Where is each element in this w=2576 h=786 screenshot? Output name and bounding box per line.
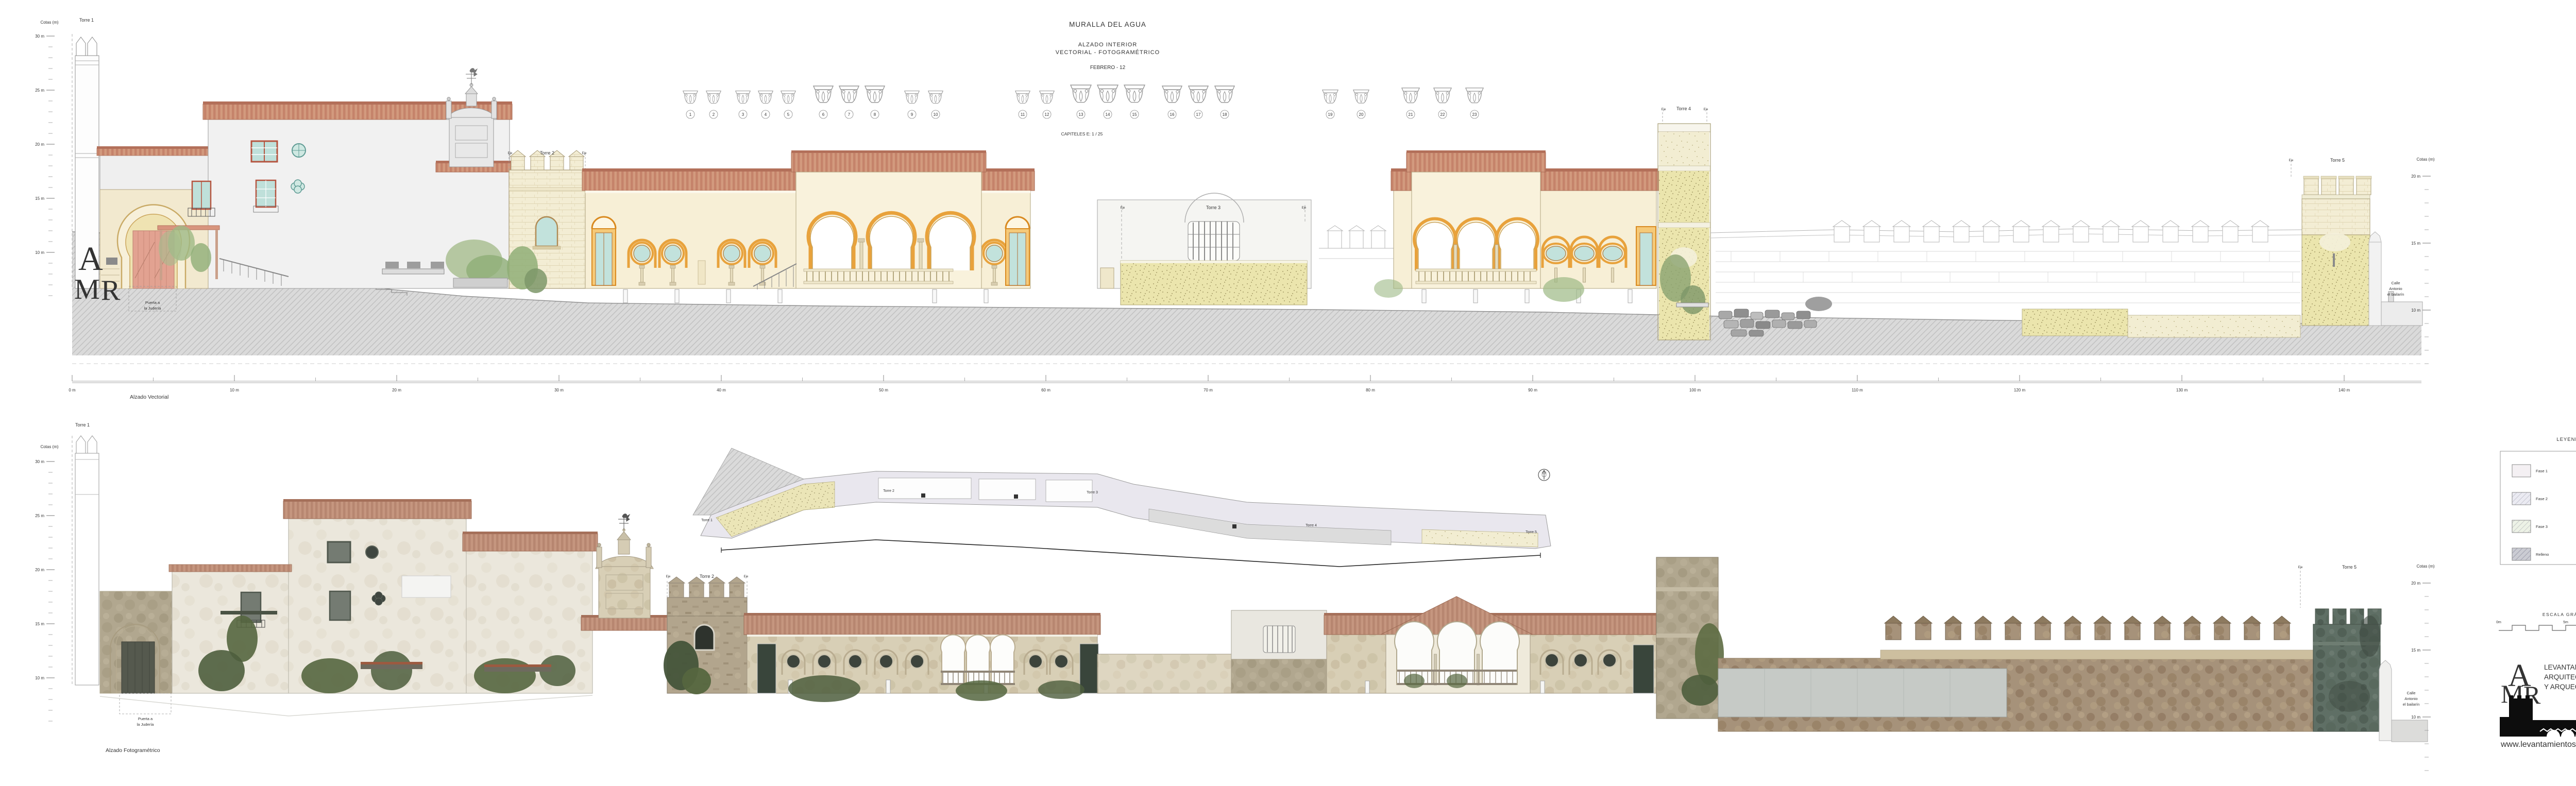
- cotas-label: 25 m: [35, 88, 44, 93]
- cotas-label: 10 m: [35, 250, 44, 255]
- page-title: MURALLA DEL AGUA: [1069, 21, 1146, 28]
- photo-caption: Alzado Fotogramétrico: [106, 747, 160, 754]
- capital-drawing: [706, 91, 721, 104]
- cotas-label: 15 m: [35, 622, 44, 626]
- cotas-label: 15 m: [2411, 241, 2420, 246]
- svg-text:R: R: [101, 275, 121, 306]
- scale-bar: [2499, 625, 2576, 630]
- cotas-label: 20 m: [35, 568, 44, 572]
- cotas-title: Cotas (m): [2416, 157, 2434, 162]
- capital-drawing: [1071, 85, 1091, 102]
- ruler-label: 40 m: [717, 388, 726, 392]
- torre-1-photo: [72, 436, 99, 685]
- label-eje: Eje: [508, 152, 513, 155]
- capital-drawing: [1162, 86, 1182, 102]
- capital-number: 12: [1045, 112, 1049, 117]
- svg-text:A: A: [78, 240, 103, 278]
- label-torre2-top: Torre 2: [540, 150, 554, 156]
- capital-drawing: [865, 86, 885, 102]
- cotas-label: 20 m: [2411, 174, 2420, 179]
- legend-label: Fase 3: [2536, 524, 2548, 529]
- label-torre5-top: Torre 5: [2330, 158, 2345, 163]
- cotas-title: Cotas (m): [40, 445, 58, 449]
- capital-number: 1: [689, 112, 692, 117]
- amr-logo: A M R LEVANTAMIENTOS ARQUITECTÓNICOS Y A…: [2500, 658, 2576, 749]
- cotas-label: 15 m: [2411, 648, 2420, 653]
- label-eje: Eje: [1121, 207, 1125, 210]
- legend-label: Fase 1: [2536, 469, 2548, 473]
- graphic-scale-title: ESCALA GRÁFICA: [2543, 612, 2576, 617]
- plan-torre-label: Torre 1: [701, 519, 713, 522]
- capital-drawing: [1124, 85, 1145, 102]
- capital-drawing: [1097, 85, 1118, 102]
- title-block: MURALLA DEL AGUA ALZADO INTERIOR VECTORI…: [1056, 21, 1160, 71]
- legend-title: LEYENDA: [2556, 437, 2576, 442]
- page-subtitle-1: ALZADO INTERIOR: [1078, 42, 1138, 48]
- label-eje: Eje: [1302, 207, 1307, 210]
- capital-drawing: [1466, 88, 1483, 103]
- gate-label-2: la Judería: [144, 306, 162, 311]
- torre-4-vector: [1658, 112, 1817, 340]
- cotas-label: 30 m: [35, 34, 44, 39]
- plan-torre-label: Torre 5: [1526, 531, 1537, 534]
- label-eje: Eje: [1662, 108, 1666, 111]
- street-label-2b: Antonio: [2404, 696, 2417, 701]
- street-pillar: [2369, 232, 2381, 326]
- plan-view: Torre 1Torre 2Torre 3Torre 4Torre 5: [693, 448, 1551, 567]
- ruler-label: 20 m: [392, 388, 401, 392]
- arcade-a-vector: [582, 150, 1035, 303]
- sheet-artwork: MURALLA DEL AGUA ALZADO INTERIOR VECTORI…: [0, 0, 2576, 786]
- casa-photo: [100, 499, 598, 716]
- capital-drawing: [1434, 88, 1451, 103]
- capital-number: 6: [822, 112, 825, 117]
- north-arrow: [1538, 469, 1550, 481]
- ruler-label: 80 m: [1366, 388, 1375, 392]
- capital-number: 5: [787, 112, 790, 117]
- legend-swatch: [2512, 465, 2531, 477]
- cotas-label: 30 m: [35, 459, 44, 464]
- ruler-label: 110 m: [1852, 388, 1863, 392]
- ruler-label: 120 m: [2014, 388, 2026, 392]
- ruler-label: 10 m: [230, 388, 239, 392]
- torre-3-photo: [1231, 610, 1327, 693]
- capital-number: 15: [1132, 112, 1137, 117]
- arcade-b-vector: [1374, 150, 1659, 303]
- label-eje: Eje: [1704, 108, 1708, 111]
- rubble-wall-photo: [1718, 616, 2313, 731]
- logo-line-2: ARQUITECTÓNICOS: [2544, 673, 2576, 681]
- logo-website: www.levantamientos.com: [2500, 740, 2576, 749]
- capital-number: 20: [1359, 112, 1364, 117]
- label-torre3-top: Torre 3: [1206, 205, 1221, 210]
- cotas-label: 15 m: [35, 196, 44, 201]
- section-line: [721, 540, 1540, 567]
- label-eje: Eje: [744, 575, 749, 578]
- torre-5-photo: [2300, 571, 2428, 742]
- capital-number: 21: [1409, 112, 1413, 117]
- drawing-sheet: MURALLA DEL AGUA ALZADO INTERIOR VECTORI…: [0, 0, 2576, 786]
- ruler-label: 70 m: [1204, 388, 1213, 392]
- label-torre2-bot: Torre 2: [700, 574, 714, 579]
- cotas-title: Cotas (m): [2416, 564, 2434, 569]
- capital-drawing: [736, 91, 751, 104]
- photo-elevation-drawing: Torre 1 Torre 2 Eje Eje Torre 5 Eje Puer…: [35, 422, 2435, 771]
- merlon-outline-fragment: [1319, 226, 1394, 259]
- ruler-label: 90 m: [1528, 388, 1537, 392]
- label-eje: Eje: [582, 152, 587, 155]
- logo-line-1: LEVANTAMIENTOS: [2544, 663, 2576, 671]
- capital-number: 10: [934, 112, 938, 117]
- label-torre4-top: Torre 4: [1676, 106, 1691, 111]
- gate-label-1b: Puerta a: [138, 716, 153, 721]
- cotas-label: 10 m: [2411, 308, 2420, 313]
- weathervane: [466, 69, 477, 84]
- label-torre1-bot: Torre 1: [75, 422, 90, 428]
- capitals-row: 1234567891011121314151617181920212223: [683, 85, 1483, 118]
- ruler-label: 30 m: [554, 388, 564, 392]
- capital-drawing: [1215, 86, 1234, 102]
- capital-number: 2: [713, 112, 715, 117]
- capital-drawing: [928, 91, 943, 104]
- arcade-b-photo: [1324, 596, 1659, 693]
- capital-number: 8: [874, 112, 876, 117]
- capital-number: 9: [911, 112, 913, 117]
- legend-label: Relleno: [2536, 552, 2549, 557]
- plan-torre-label: Torre 2: [883, 489, 894, 493]
- capital-drawing: [758, 91, 773, 104]
- page-subtitle-2: VECTORIAL - FOTOGRAMÉTRICO: [1056, 49, 1160, 56]
- ruler-label: 0 m: [69, 388, 76, 392]
- graphic-scale: ESCALA GRÁFICA 0m5m10m: [2496, 612, 2576, 630]
- capital-number: 3: [742, 112, 744, 117]
- belfry-photo: [581, 514, 669, 630]
- capital-number: 23: [1472, 112, 1477, 117]
- capital-drawing: [1402, 88, 1419, 103]
- label-eje: Eje: [666, 575, 671, 578]
- cotas-label: 10 m: [2411, 715, 2420, 720]
- torre-4-photo: [1656, 557, 1724, 719]
- capital-drawing: [781, 91, 796, 104]
- capital-number: 4: [765, 112, 767, 117]
- capital-drawing: [1353, 90, 1369, 104]
- ruler-label: 130 m: [2176, 388, 2188, 392]
- capital-number: 22: [1440, 112, 1445, 117]
- vector-elevation-drawing: A M R Torre 1 Torre 2 Eje Eje Torre 3 Ej…: [35, 18, 2435, 400]
- cotas-label: 20 m: [35, 142, 44, 147]
- svg-text:M: M: [74, 274, 100, 305]
- label-eje: Eje: [2298, 566, 2303, 569]
- capital-drawing: [905, 91, 920, 104]
- cotas-label: 20 m: [2411, 581, 2420, 586]
- plan-torre-label: Torre 3: [1087, 491, 1098, 494]
- capital-number: 16: [1170, 112, 1175, 117]
- capitals-scale-label: CAPITELES E: 1 / 25: [1061, 131, 1103, 136]
- capital-drawing: [683, 91, 698, 104]
- page-date: FEBRERO - 12: [1090, 65, 1126, 71]
- scale-bar-label: 0m: [2496, 621, 2501, 624]
- capital-number: 18: [1223, 112, 1227, 117]
- label-torre5-bot: Torre 5: [2342, 565, 2357, 570]
- capital-drawing: [1323, 90, 1338, 104]
- scale-bar-label: 5m: [2563, 621, 2568, 624]
- capital-number: 7: [848, 112, 851, 117]
- capital-number: 13: [1079, 112, 1083, 117]
- street-label-3: el bailarín: [2387, 292, 2404, 297]
- gate-label-2b: la Judería: [137, 722, 155, 727]
- capital-number: 11: [1021, 112, 1025, 117]
- torre-3-vector: [1097, 193, 1311, 305]
- horizontal-meter-ruler: 0 m10 m20 m30 m40 m50 m60 m70 m80 m90 m1…: [69, 375, 2421, 392]
- cotas-label: 25 m: [35, 514, 44, 518]
- street-label-1: Calle: [2391, 281, 2400, 285]
- torre-2-photo: [664, 577, 747, 694]
- ruler-label: 100 m: [1689, 388, 1701, 392]
- capital-number: 19: [1328, 112, 1333, 117]
- street-label-3b: el bailarín: [2403, 702, 2420, 707]
- capital-drawing: [814, 86, 833, 102]
- street-label-2: Antonio: [2389, 286, 2402, 291]
- vector-caption: Alzado Vectorial: [130, 394, 168, 400]
- gate-photo: [100, 591, 172, 714]
- ruler-label: 50 m: [879, 388, 888, 392]
- torre-2-vector: [507, 150, 585, 293]
- capital-drawing: [1040, 91, 1055, 104]
- ruler-label: 60 m: [1041, 388, 1050, 392]
- cotas-scale-bottom-left: Cotas (m)30 m25 m20 m15 m10 m: [35, 445, 59, 721]
- label-torre1-top: Torre 1: [79, 18, 94, 23]
- arcade-a-photo: [744, 613, 1100, 702]
- casa-vector: [97, 69, 513, 311]
- cotas-scale-top-left: Cotas (m)30 m25 m20 m15 m10 m: [35, 20, 59, 296]
- capital-drawing: [1189, 86, 1208, 102]
- legend-label: Fase 2: [2536, 497, 2548, 501]
- capital-drawing: [839, 86, 859, 102]
- label-eje: Eje: [2289, 159, 2294, 162]
- cotas-label: 10 m: [35, 676, 44, 680]
- capital-number: 14: [1106, 112, 1110, 117]
- ruler-label: 140 m: [2338, 388, 2350, 392]
- logo-line-3: Y ARQUEOLÓGICOS: [2544, 683, 2576, 691]
- plan-torre-label: Torre 4: [1306, 524, 1317, 527]
- torre-5-vector: [2291, 164, 2422, 326]
- cotas-title: Cotas (m): [40, 20, 58, 25]
- capital-drawing: [1015, 91, 1030, 104]
- gate-label-1: Puerta a: [145, 300, 160, 305]
- legend: LEYENDA Fase 1Fase 2Fase 3RellenoTapial …: [2500, 437, 2576, 565]
- capital-number: 17: [1196, 112, 1201, 117]
- street-label-1b: Calle: [2406, 691, 2415, 695]
